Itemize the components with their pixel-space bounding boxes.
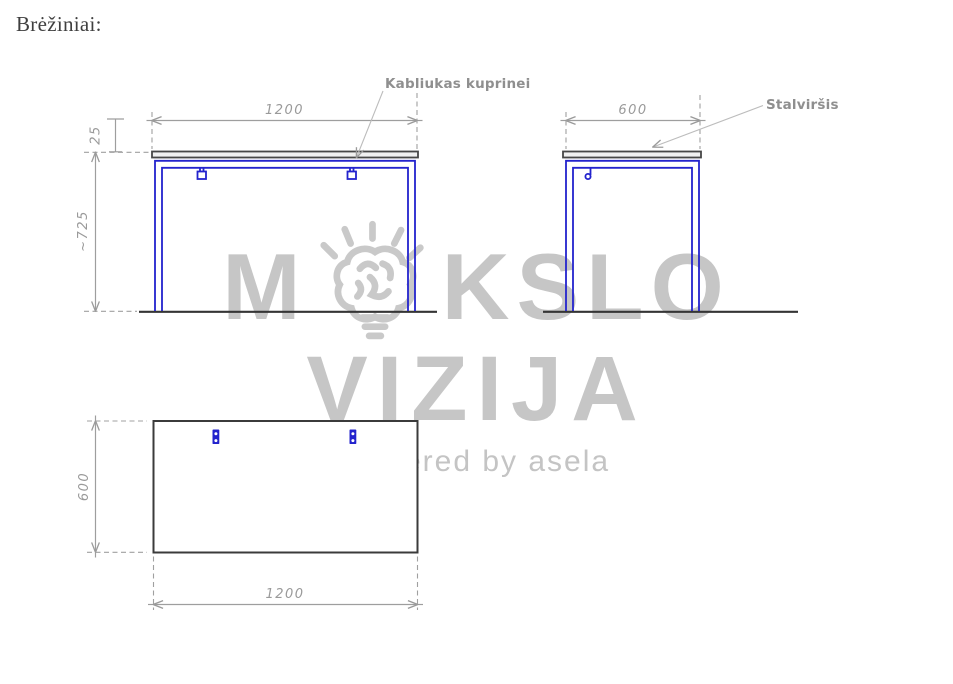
top-view: 600 1200 <box>77 416 423 611</box>
side-view: 600 Stalviršis <box>543 95 839 312</box>
hook-callout: Kabliukas kuprinei <box>357 76 531 158</box>
backpack-hook-front-left <box>198 168 207 179</box>
top-width-value: 1200 <box>265 587 304 602</box>
front-frame-inner <box>162 168 408 311</box>
backpack-hook-top-left <box>213 430 220 445</box>
top-width-dimension: 1200 <box>148 557 423 611</box>
front-thickness-dimension: 25 <box>84 119 149 152</box>
top-depth-dimension: 600 <box>77 416 147 558</box>
front-view: 1200 25 ~725 Kabliukas kuprinei <box>76 76 530 312</box>
side-tabletop <box>563 152 701 158</box>
side-depth-dimension: 600 <box>561 95 706 149</box>
front-height-value: ~725 <box>76 210 91 252</box>
hook-label: Kabliukas kuprinei <box>385 76 530 92</box>
backpack-hook-top-right <box>350 430 357 445</box>
top-depth-value: 600 <box>77 472 92 501</box>
front-frame-outer <box>155 161 415 311</box>
front-width-value: 1200 <box>265 103 304 118</box>
backpack-hook-front-right <box>348 168 357 179</box>
backpack-hook-side <box>585 168 590 179</box>
front-tabletop <box>152 152 418 158</box>
front-height-dimension: ~725 <box>76 153 137 312</box>
tabletop-callout: Stalviršis <box>653 97 839 147</box>
side-frame-inner <box>573 168 692 311</box>
side-depth-value: 600 <box>618 103 647 118</box>
side-frame-outer <box>566 161 699 311</box>
tabletop-label: Stalviršis <box>766 97 839 113</box>
front-thickness-value: 25 <box>89 125 104 145</box>
front-width-dimension: 1200 <box>147 93 423 149</box>
drawing-page: Brėžiniai: M <box>0 0 953 684</box>
top-view-outline <box>154 421 418 553</box>
technical-drawing: 1200 25 ~725 Kabliukas kuprinei <box>0 0 953 684</box>
